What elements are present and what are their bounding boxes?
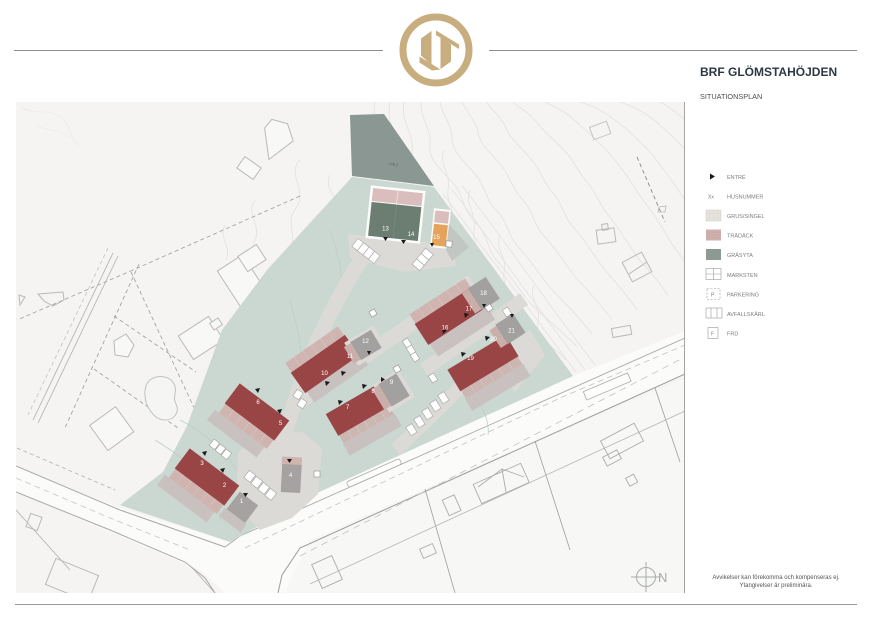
svg-text:ENTRÉ: ENTRÉ [727, 174, 746, 181]
svg-text:F: F [711, 332, 714, 338]
svg-text:MARKSTEN: MARKSTEN [727, 273, 758, 279]
svg-text:19: 19 [467, 356, 474, 362]
svg-text:TRÄDÄCK: TRÄDÄCK [727, 233, 754, 240]
svg-text:11: 11 [347, 354, 354, 360]
svg-text:10: 10 [321, 371, 328, 377]
svg-text:17: 17 [466, 307, 473, 313]
svg-text:14: 14 [408, 232, 415, 238]
svg-text:16: 16 [442, 326, 449, 332]
svg-text:GRUS/SINGEL: GRUS/SINGEL [727, 214, 765, 220]
svg-text:N: N [658, 570, 667, 585]
svg-text:20: 20 [490, 337, 497, 343]
svg-text:FRD: FRD [727, 332, 738, 338]
svg-text:Xx: Xx [708, 195, 714, 201]
svg-text:PARKERING: PARKERING [727, 293, 759, 299]
svg-text:18: 18 [480, 291, 487, 297]
svg-text:15: 15 [433, 235, 440, 241]
svg-text:AVFALLSKÄRL: AVFALLSKÄRL [727, 311, 765, 318]
svg-text:13: 13 [382, 227, 389, 233]
svg-text:12: 12 [362, 339, 369, 345]
svg-text:HUSNUMMER: HUSNUMMER [727, 195, 763, 201]
svg-text:GRÄSYTA: GRÄSYTA [727, 252, 753, 259]
svg-text:21: 21 [508, 329, 515, 335]
